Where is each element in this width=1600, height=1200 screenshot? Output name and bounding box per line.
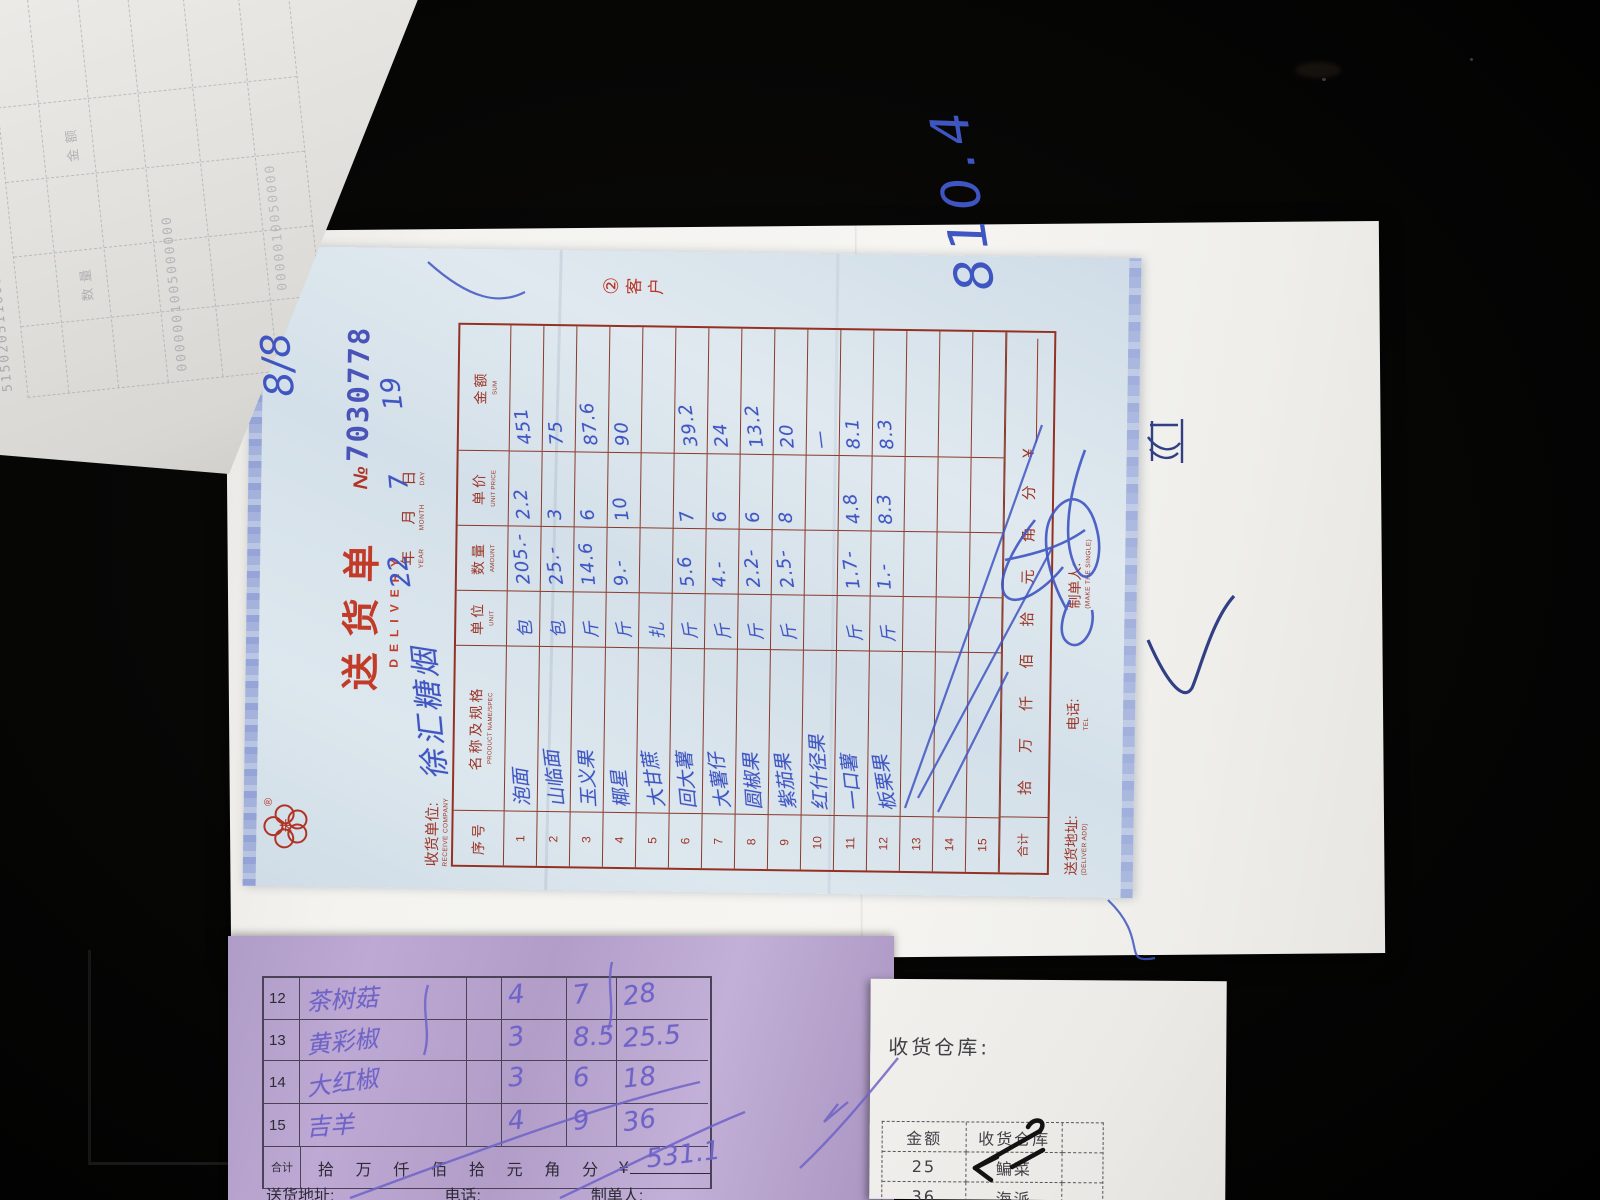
brand-blossom-icon: 米 ®: [259, 796, 316, 853]
cell-qty: 2.2-: [739, 529, 773, 594]
cell-price: [641, 452, 675, 527]
handwritten-price: 6: [709, 509, 731, 523]
capital-digit: 佰: [431, 1156, 447, 1180]
capital-digit: 仟: [393, 1156, 409, 1180]
cell-name: 泡面: [505, 645, 540, 810]
cell-price: 6: [740, 454, 774, 529]
handwritten-name: 圆椒果: [736, 752, 767, 811]
handwritten-unit: 包: [510, 620, 536, 639]
cell-unit: 扎: [639, 592, 673, 647]
cell-sum: 451: [510, 325, 545, 450]
handwritten-qty: 205.-: [508, 532, 534, 586]
cell-price: 2.2: [509, 450, 543, 525]
cell-sum: 87.6: [576, 326, 611, 451]
total-amount-cell: ¥: [1006, 332, 1055, 464]
cell-name: 圆椒果: [736, 649, 771, 814]
cell-sum: 18: [617, 1061, 708, 1104]
purple-address-label: 送货地址:: [266, 1182, 334, 1200]
handwritten-name: 大甘蔗: [635, 750, 671, 811]
handwritten-year: 22: [383, 553, 418, 590]
handwritten-qty: 4: [506, 979, 526, 1011]
table-header-row: 序号 名称及规格PRODUCT NAME/SPEC 单位UNIT 数量AMOUN…: [453, 325, 512, 866]
cell-name: 椰星: [604, 647, 639, 812]
cell-price: 9: [567, 1104, 617, 1147]
form-serial-number: № 7030778: [340, 326, 376, 490]
registered-icon: ®: [263, 798, 275, 806]
handwritten-unit: 斤: [774, 623, 801, 643]
total-underline: [1022, 339, 1038, 443]
cell-price: 6: [707, 453, 741, 528]
cell-sum: 24: [708, 328, 743, 453]
cell-no: 6: [669, 813, 703, 868]
handwritten-sum: 451: [510, 406, 536, 446]
table-row: 36 海派: [882, 1182, 1102, 1200]
warehouse-blank-cell: [1062, 1183, 1102, 1200]
cell-name: 一口薯: [835, 650, 870, 815]
cell-no: 15: [966, 817, 1000, 872]
cell-no: 13: [900, 816, 934, 871]
cell-qty: [970, 532, 1004, 597]
handwritten-unit: 斤: [840, 624, 867, 644]
cell-qty: 14.6: [574, 526, 608, 591]
copy-holder-char: 户: [646, 273, 668, 299]
handwritten-name: 吉羊: [305, 1104, 355, 1142]
cell-unit: [936, 596, 970, 651]
cell-price: 3: [542, 451, 576, 526]
form-title-cn: 送货单: [329, 499, 387, 720]
handwritten-sum: 8.3: [874, 417, 898, 451]
handwritten-name: 紫茄果: [768, 752, 802, 812]
cell-no: 14: [933, 816, 967, 871]
handwritten-qty: 1.-: [873, 562, 896, 590]
capital-digit: 分: [1018, 485, 1039, 500]
month-label-en: MONTH: [419, 504, 426, 530]
total-label: 合计: [1000, 816, 1048, 873]
cell-name: [901, 651, 936, 816]
month-label: 月: [401, 509, 418, 524]
photo-of-documents: 米 ® 送货单 DELIVERY № 7030778 年YEAR 月MONTH …: [0, 0, 1600, 1200]
cell-no: 4: [603, 812, 637, 867]
cell-price: 10: [608, 452, 642, 527]
dust-smudge: [1295, 62, 1341, 78]
col-header-no: 序号: [453, 810, 505, 866]
handwritten-unit: 斤: [609, 621, 636, 641]
cell-price: [971, 457, 1005, 532]
cell-no: 5: [636, 812, 670, 867]
cell-price: 6: [567, 1061, 617, 1104]
dust-speck: [1470, 58, 1473, 61]
cell-sum: 39.2: [675, 328, 710, 453]
delivery-note-sheet: 米 ® 送货单 DELIVERY № 7030778 年YEAR 月MONTH …: [243, 246, 1142, 898]
serial-number-label: №: [350, 466, 372, 489]
capital-digit: 佰: [1016, 654, 1037, 669]
handwritten-sum: 8.1: [842, 417, 865, 450]
handwritten-name: 山临面: [537, 749, 571, 809]
cell-qty: 25.-: [541, 526, 575, 591]
capital-digit: 元: [1017, 569, 1038, 584]
warehouse-name: 鳊菜: [966, 1152, 1062, 1183]
cell-name: 红什径果: [802, 650, 837, 815]
date-line: 年YEAR 月MONTH 日DAY: [397, 318, 430, 568]
table-row: 25 鳊菜: [882, 1152, 1102, 1184]
address-label-en: (DELIVER ADD): [1081, 816, 1089, 876]
cell-no: 13: [264, 1020, 300, 1061]
cell-name: 玉义果: [571, 646, 606, 811]
capital-digit: 分: [582, 1156, 598, 1180]
handwritten-sum: 24: [710, 422, 733, 449]
col-header-qty: 数量AMOUNT: [457, 525, 509, 591]
cell-qty: [937, 531, 971, 596]
copy-holder-char: 客: [624, 273, 646, 299]
handwritten-qty: 4.-: [708, 560, 730, 588]
handwritten-sum: 20: [776, 423, 799, 449]
handwritten-price: 6: [742, 509, 764, 524]
cell-price: 6: [575, 451, 609, 526]
cell-unit: [467, 1104, 502, 1147]
cell-sum: 8.1: [840, 330, 875, 455]
tel-label-en: TEL: [1083, 699, 1090, 731]
capital-digit: 拾: [1014, 780, 1035, 795]
cell-no: 2: [537, 811, 571, 866]
purple-maker-label: 制单人:: [591, 1182, 643, 1200]
cell-unit: 斤: [837, 595, 871, 650]
amount-capital-digits: 拾万仟佰拾元角分: [1001, 463, 1053, 817]
capital-digit: 万: [356, 1156, 372, 1180]
receiver-label-en: RECEIVE COMPANY: [442, 798, 450, 867]
cell-no: 12: [264, 978, 300, 1020]
table-row: 15吉羊4936: [264, 1104, 710, 1147]
handwritten-price: 8.5: [572, 1021, 615, 1053]
capital-digit: 仟: [1015, 696, 1036, 711]
handwritten-price: 8.3: [874, 492, 898, 525]
cell-price: 7: [567, 978, 617, 1020]
cell-price: [806, 455, 840, 530]
handwritten-unit: 斤: [741, 623, 767, 642]
cell-name: 板栗果: [868, 650, 903, 815]
cell-no: 15: [264, 1104, 300, 1147]
handwritten-unit: 斤: [675, 622, 702, 642]
handwritten-price: 4.8: [840, 491, 866, 526]
warehouse-note-label: 收货仓库:: [888, 1031, 990, 1061]
maker-label-en: (MAKE THE SINGLE): [1085, 539, 1093, 609]
cell-name: 茶树菇: [300, 978, 467, 1020]
cell-no: 10: [801, 815, 835, 870]
serial-number-value: 7030778: [341, 326, 377, 463]
handwritten-sum: 18: [622, 1061, 658, 1094]
year-label-en: YEAR: [418, 548, 425, 568]
cell-name: 大红椒: [300, 1061, 467, 1104]
capital-digit: 角: [544, 1156, 560, 1180]
handwritten-price: 9: [571, 1105, 591, 1137]
table-row: 13黄彩椒38.525.5: [264, 1020, 710, 1061]
warehouse-name: 海派: [966, 1182, 1062, 1200]
handwritten-name: 一口薯: [834, 753, 867, 813]
handwritten-month: 7: [384, 473, 414, 491]
cell-unit: 斤: [771, 594, 805, 649]
handwritten-name: 黄彩椒: [304, 1018, 379, 1060]
capital-digit: 元: [507, 1156, 523, 1180]
cell-unit: 包: [507, 590, 541, 645]
cell-name: 黄彩椒: [300, 1020, 467, 1061]
cell-unit: 斤: [870, 595, 904, 650]
cell-sum: 25.5: [617, 1020, 708, 1061]
handwritten-name: 回大薯: [670, 751, 702, 810]
currency-symbol: ¥: [1020, 449, 1038, 458]
handwritten-receiver: 徐汇糖烟: [399, 643, 455, 782]
handwritten-sum: 13.2: [741, 403, 768, 450]
handwritten-name: 大薯仔: [701, 751, 736, 811]
receiver-field: 收货单位: RECEIVE COMPANY: [421, 798, 450, 867]
handwritten-name: 泡面: [506, 768, 536, 808]
handwritten-sum: 39.2: [675, 401, 703, 448]
warehouse-header-row: 金额 收货仓库: [883, 1122, 1103, 1154]
copy-indicator: ② 客 户: [599, 273, 668, 300]
col-header-name: 名称及规格PRODUCT NAME/SPEC: [454, 645, 507, 811]
handwritten-name: 大红椒: [304, 1058, 380, 1103]
cell-unit: 斤: [573, 591, 607, 646]
col-header-unit: 单位UNIT: [456, 590, 508, 646]
handwritten-unit: 斤: [708, 622, 735, 643]
handwritten-price: 7: [571, 979, 591, 1011]
cell-unit: [903, 596, 937, 651]
cell-qty: [904, 531, 938, 596]
col-header-price: 单价UNIT PRICE: [458, 450, 510, 526]
purple-form-footer: 送货地址: 电话: 制单人:: [266, 1182, 826, 1200]
cell-no: 1: [504, 810, 538, 865]
handwritten-price: 6: [572, 1062, 591, 1093]
cell-unit: [467, 1061, 502, 1104]
handwritten-price: 10: [609, 495, 634, 523]
address-label: 送货地址:: [1063, 815, 1080, 875]
cell-sum: 13.2: [741, 329, 776, 454]
cell-unit: 斤: [738, 594, 772, 649]
handwritten-qty: 9.-: [608, 558, 633, 587]
handwritten-price: 2.2: [510, 487, 535, 521]
cell-name: 吉羊: [300, 1104, 467, 1147]
handwritten-day: 19: [376, 375, 410, 412]
cell-sum: 20: [774, 329, 809, 454]
cell-price: 4.8: [839, 455, 873, 530]
handwritten-unit: 斤: [874, 625, 900, 643]
warehouse-slip: 收货仓库: 金额 收货仓库 25 鳊菜 36 海派: [869, 979, 1227, 1200]
capital-digit: 角: [1017, 527, 1038, 542]
cell-unit: 斤: [672, 593, 706, 648]
handwritten-qty: 3: [507, 1062, 526, 1093]
cell-qty: 4: [502, 978, 567, 1020]
handwritten-qty: 2.5-: [772, 548, 799, 590]
maker-label: 制单人:: [1067, 563, 1084, 609]
col-header-sum: 金额SUM: [459, 325, 512, 451]
handwritten-qty: 4: [506, 1105, 526, 1137]
handwritten-price: 3: [544, 507, 566, 521]
cell-qty: 1.7-: [838, 530, 872, 595]
cell-price: [905, 456, 939, 531]
warehouse-amount: 25: [882, 1152, 966, 1183]
handwritten-qty: 2.2-: [740, 548, 765, 589]
cell-unit: 包: [540, 591, 574, 646]
cell-qty: [805, 530, 839, 595]
handwritten-price: 7: [676, 508, 699, 523]
cell-name: 大薯仔: [703, 648, 738, 813]
handwritten-price: 8: [775, 510, 797, 524]
cell-sum: —: [807, 330, 842, 455]
cell-no: 12: [867, 815, 901, 870]
capital-digit: 拾: [1016, 611, 1037, 626]
cell-no: 7: [702, 813, 736, 868]
table-row: 12茶树菇4728: [264, 978, 710, 1020]
cell-sum: [906, 331, 941, 456]
cell-name: 回大薯: [670, 648, 705, 813]
total-row: 合计 拾万仟佰拾元角分 ¥: [999, 332, 1055, 873]
cell-sum: 28: [617, 978, 708, 1020]
cell-unit: [467, 978, 502, 1020]
warehouse-table: 金额 收货仓库 25 鳊菜 36 海派: [881, 1121, 1104, 1200]
cell-sum: [642, 327, 677, 452]
handwritten-qty: 3: [506, 1021, 527, 1053]
cell-price: [938, 456, 972, 531]
cell-qty: 3: [502, 1020, 567, 1061]
handwritten-sum: 28: [621, 978, 658, 1012]
handwritten-qty: 5.6: [674, 554, 699, 588]
handwritten-qty: 14.6: [575, 541, 600, 587]
cell-sum: 90: [609, 327, 644, 452]
handwritten-name: 玉义果: [572, 750, 602, 808]
cell-no: 14: [264, 1061, 300, 1104]
cell-qty: [640, 527, 674, 592]
cell-price: 8: [773, 454, 807, 529]
warehouse-col-warehouse: 收货仓库: [967, 1122, 1063, 1153]
cell-no: 9: [768, 814, 802, 869]
warehouse-amount: 36: [882, 1182, 966, 1200]
handwritten-qty: 25.-: [541, 545, 568, 587]
handwritten-price: 6: [577, 507, 599, 522]
cell-qty: 5.6: [673, 528, 707, 593]
receipt-column-label: 金额: [59, 123, 82, 163]
cell-price: 7: [674, 453, 708, 528]
cell-qty: 1.-: [871, 531, 905, 596]
cell-unit: [804, 595, 838, 650]
cell-qty: 205.-: [508, 525, 542, 590]
capital-digit: 拾: [318, 1156, 334, 1180]
cell-sum: 8.3: [873, 331, 908, 456]
cell-unit: 斤: [705, 593, 739, 648]
delivery-items-table: 序号 名称及规格PRODUCT NAME/SPEC 单位UNIT 数量AMOUN…: [451, 323, 1057, 875]
cell-price: 8.5: [567, 1020, 617, 1061]
cell-name: [967, 652, 1002, 817]
handwritten-sum: 87.6: [576, 400, 602, 446]
handwritten-sum: —: [809, 429, 832, 450]
handwritten-unit: 包: [543, 619, 570, 639]
cell-no: 11: [834, 815, 868, 870]
form-footer: 送货地址:(DELIVER ADD) 电话:TEL 制单人:(MAKE THE …: [1061, 315, 1096, 875]
cell-price: 8.3: [872, 456, 906, 531]
form-title: 送货单 DELIVERY: [329, 499, 403, 720]
capital-digit: 拾: [469, 1156, 485, 1180]
cell-unit: 斤: [606, 592, 640, 647]
cell-sum: [939, 331, 974, 456]
dust-speck: [1322, 78, 1326, 81]
warehouse-col-amount: 金额: [883, 1122, 967, 1153]
cell-qty: 3: [502, 1061, 567, 1104]
copy-number-badge: ②: [599, 273, 624, 299]
cell-qty: 2.5-: [772, 529, 806, 594]
purple-copy-sheet: 12茶树菇472813黄彩椒38.525.514大红椒361815吉羊4936 …: [228, 936, 894, 1200]
cell-no: 3: [570, 811, 604, 866]
handwritten-sum: 75: [545, 419, 568, 445]
cell-sum: [972, 332, 1007, 457]
handwritten-sum: 90: [611, 421, 633, 447]
cell-name: 大甘蔗: [637, 647, 672, 812]
handwritten-qty: 1.7-: [838, 549, 864, 591]
handwritten-sum: 25.5: [622, 1020, 682, 1054]
svg-text:米: 米: [279, 818, 295, 832]
capital-digit: 万: [1015, 738, 1036, 753]
handwritten-unit: 扎: [643, 622, 669, 640]
cell-sum: 75: [543, 326, 578, 451]
table-row: 14大红椒3618: [264, 1061, 710, 1104]
handwritten-unit: 斤: [577, 621, 603, 640]
cell-name: [934, 651, 969, 816]
purple-currency-symbol: ¥: [619, 1158, 628, 1178]
tel-label: 电话:: [1065, 698, 1081, 730]
cell-no: 8: [735, 814, 769, 869]
cell-name: 紫茄果: [769, 649, 804, 814]
warehouse-blank-cell: [1062, 1153, 1102, 1183]
receipt-column-label: 数量: [74, 262, 97, 302]
table-body: 1泡面包205.-2.24512山临面包25.-3753玉义果斤14.6687.…: [504, 325, 1006, 872]
cell-unit: [467, 1020, 502, 1061]
purple-items-table: 12茶树菇472813黄彩椒38.525.514大红椒361815吉羊4936 …: [262, 976, 712, 1189]
day-label-en: DAY: [419, 471, 426, 486]
handwritten-name: 板栗果: [866, 753, 902, 814]
handwritten-name: 茶树菇: [305, 978, 379, 1018]
purple-tel-label: 电话:: [444, 1182, 480, 1200]
cell-unit: [969, 597, 1003, 652]
cell-name: 山临面: [538, 646, 573, 811]
handwritten-name: 红什径果: [802, 734, 833, 811]
cell-qty: 4.-: [706, 528, 740, 593]
cell-qty: 4: [502, 1104, 567, 1147]
cell-qty: 9.-: [607, 527, 641, 592]
handwritten-margin-note: 8/8: [252, 331, 303, 399]
handwritten-sum: 36: [621, 1104, 658, 1138]
handwritten-name: 椰星: [604, 769, 635, 810]
warehouse-col-blank: [1063, 1123, 1103, 1153]
receiver-label: 收货单位:: [424, 802, 442, 866]
